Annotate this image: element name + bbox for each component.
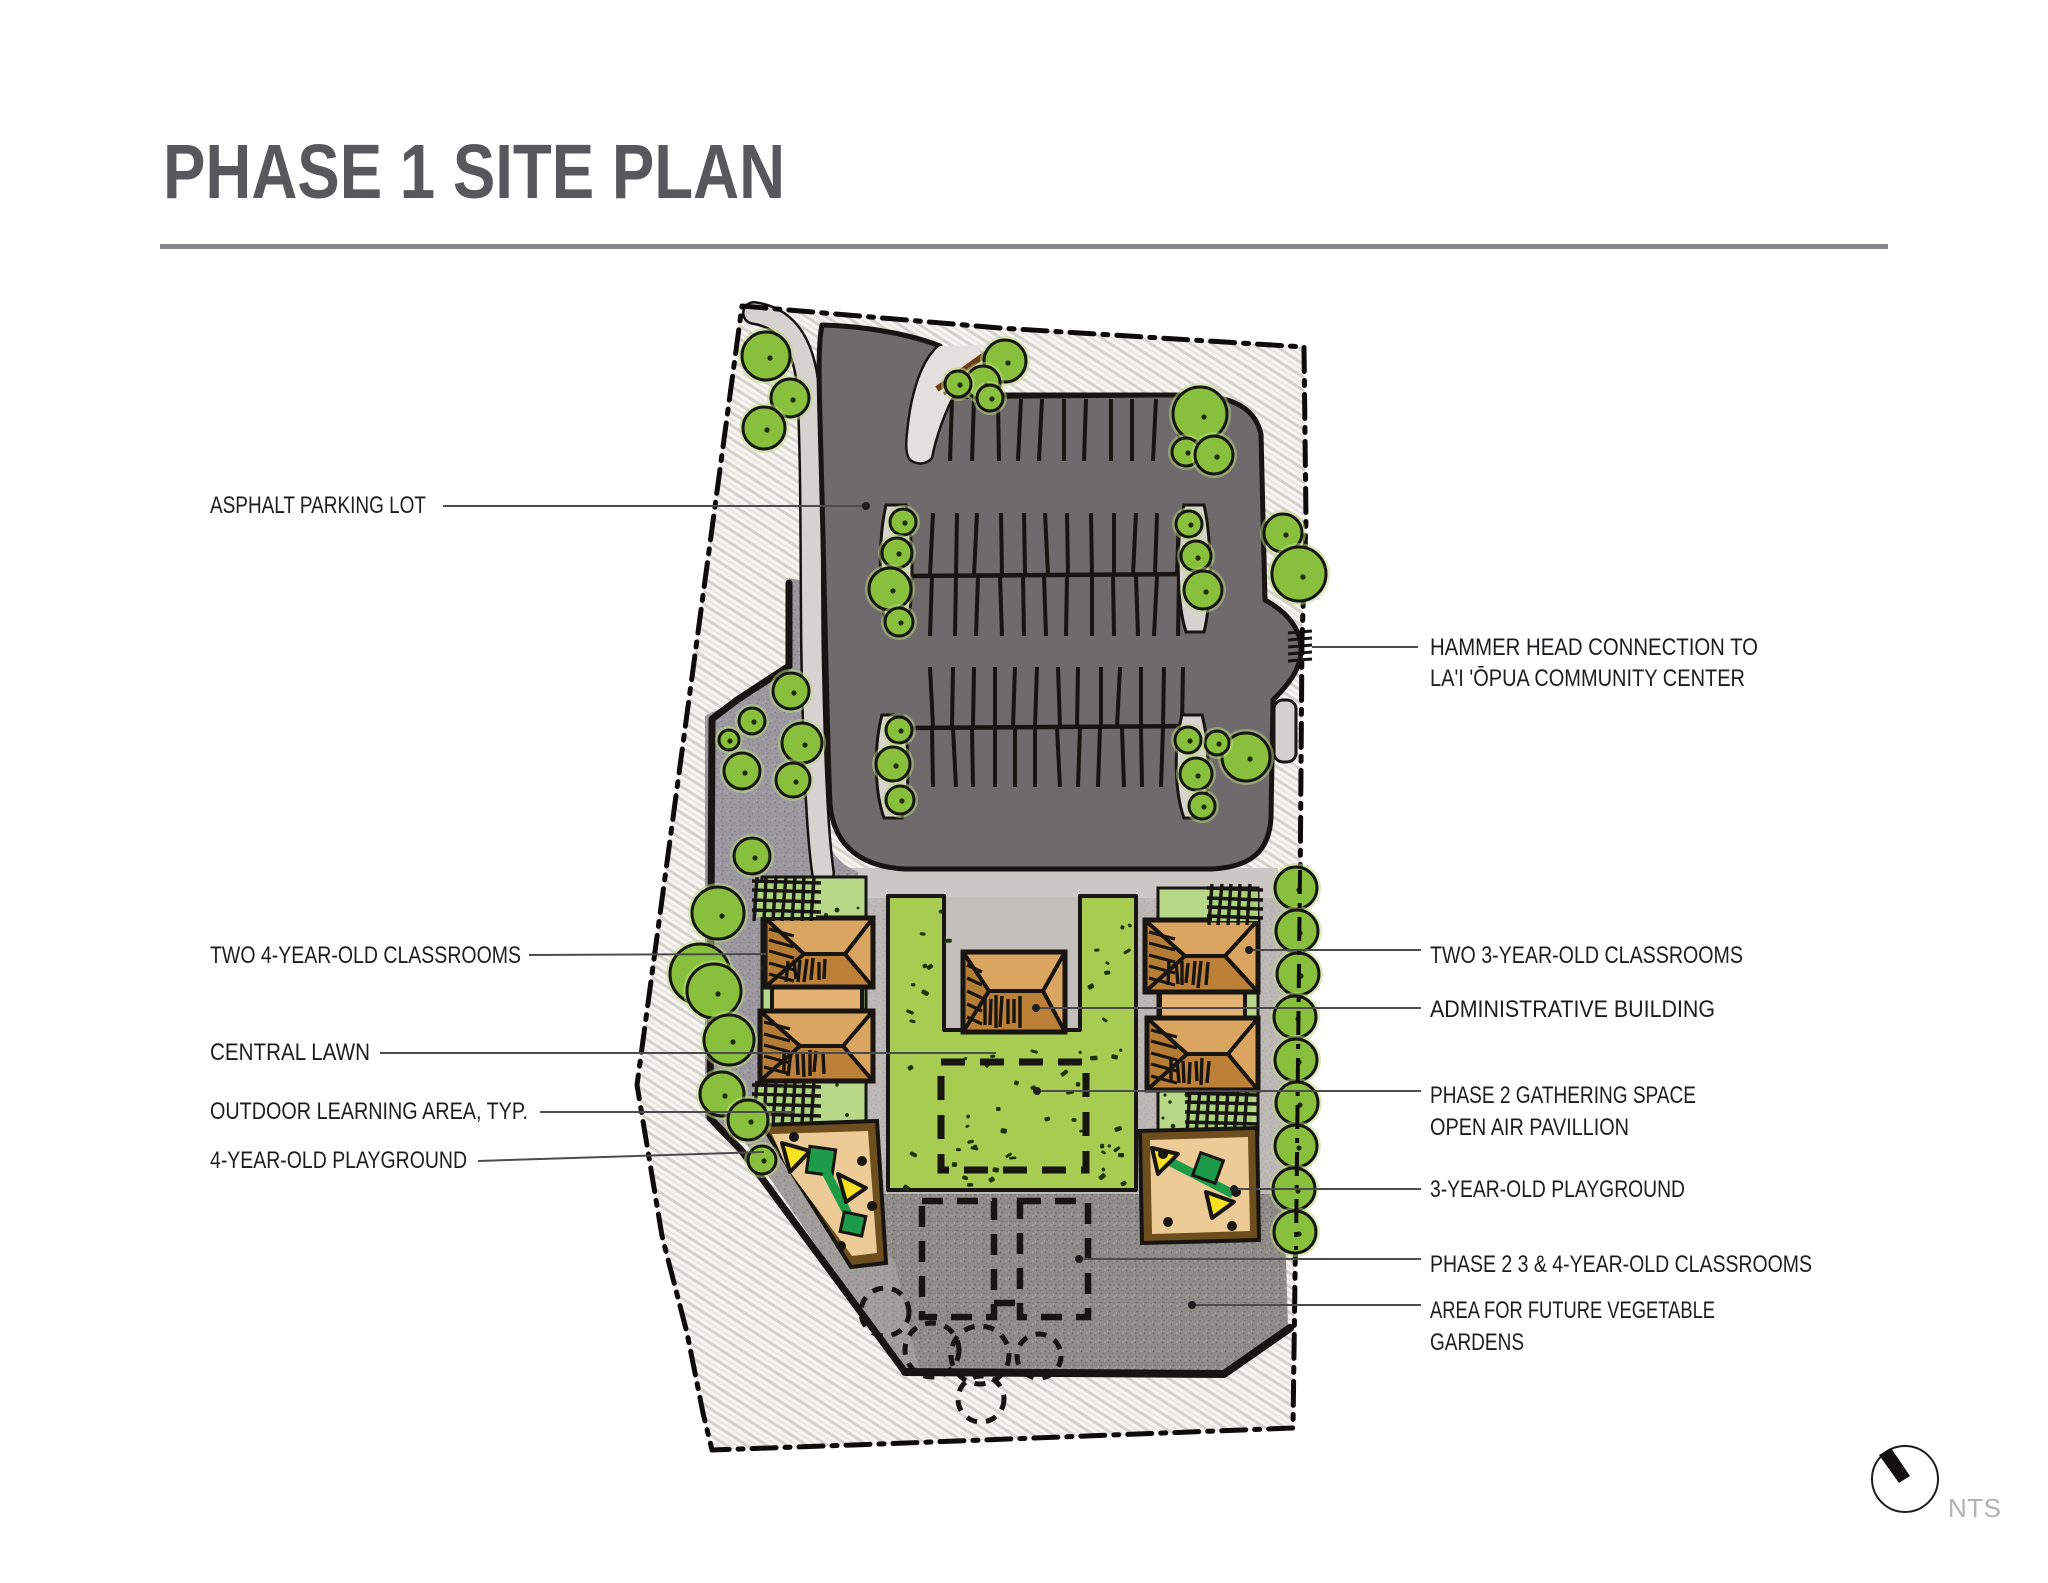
svg-text:TWO 3-YEAR-OLD CLASSROOMS: TWO 3-YEAR-OLD CLASSROOMS xyxy=(1430,942,1743,969)
svg-text:HAMMER HEAD CONNECTION TO: HAMMER HEAD CONNECTION TO xyxy=(1430,634,1758,661)
svg-text:PHASE 1 SITE PLAN: PHASE 1 SITE PLAN xyxy=(163,129,785,215)
svg-text:AREA FOR FUTURE VEGETABLE: AREA FOR FUTURE VEGETABLE xyxy=(1430,1297,1715,1324)
svg-text:3-YEAR-OLD PLAYGROUND: 3-YEAR-OLD PLAYGROUND xyxy=(1430,1176,1685,1203)
svg-text:TWO 4-YEAR-OLD CLASSROOMS: TWO 4-YEAR-OLD CLASSROOMS xyxy=(210,942,521,969)
svg-text:OUTDOOR LEARNING AREA, TYP.: OUTDOOR LEARNING AREA, TYP. xyxy=(210,1098,528,1125)
svg-text:4-YEAR-OLD PLAYGROUND: 4-YEAR-OLD PLAYGROUND xyxy=(210,1147,467,1174)
svg-text:CENTRAL LAWN: CENTRAL LAWN xyxy=(210,1039,370,1066)
svg-text:GARDENS: GARDENS xyxy=(1430,1329,1524,1356)
svg-text:LA'I 'ŌPUA COMMUNITY CENTER: LA'I 'ŌPUA COMMUNITY CENTER xyxy=(1430,665,1745,692)
svg-text:OPEN AIR PAVILLION: OPEN AIR PAVILLION xyxy=(1430,1114,1629,1141)
svg-text:PHASE 2 3 & 4-YEAR-OLD CLASSRO: PHASE 2 3 & 4-YEAR-OLD CLASSROOMS xyxy=(1430,1251,1812,1278)
svg-text:ASPHALT PARKING LOT: ASPHALT PARKING LOT xyxy=(210,492,426,519)
svg-text:ADMINISTRATIVE BUILDING: ADMINISTRATIVE BUILDING xyxy=(1430,996,1715,1023)
svg-text:NTS: NTS xyxy=(1948,1493,2002,1523)
svg-text:PHASE 2 GATHERING SPACE: PHASE 2 GATHERING SPACE xyxy=(1430,1082,1696,1109)
